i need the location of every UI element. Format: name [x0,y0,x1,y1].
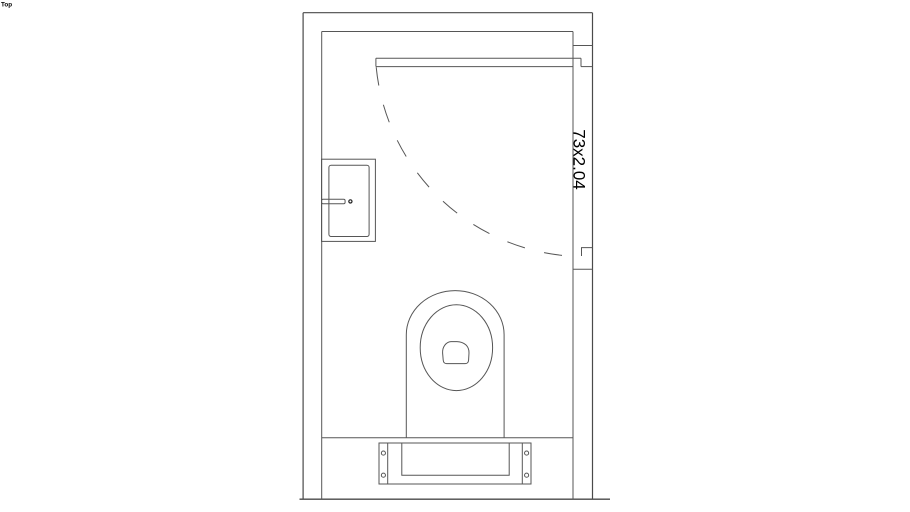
svg-text:Top: Top [1,1,12,8]
svg-text:73x2.04: 73x2.04 [570,129,589,190]
